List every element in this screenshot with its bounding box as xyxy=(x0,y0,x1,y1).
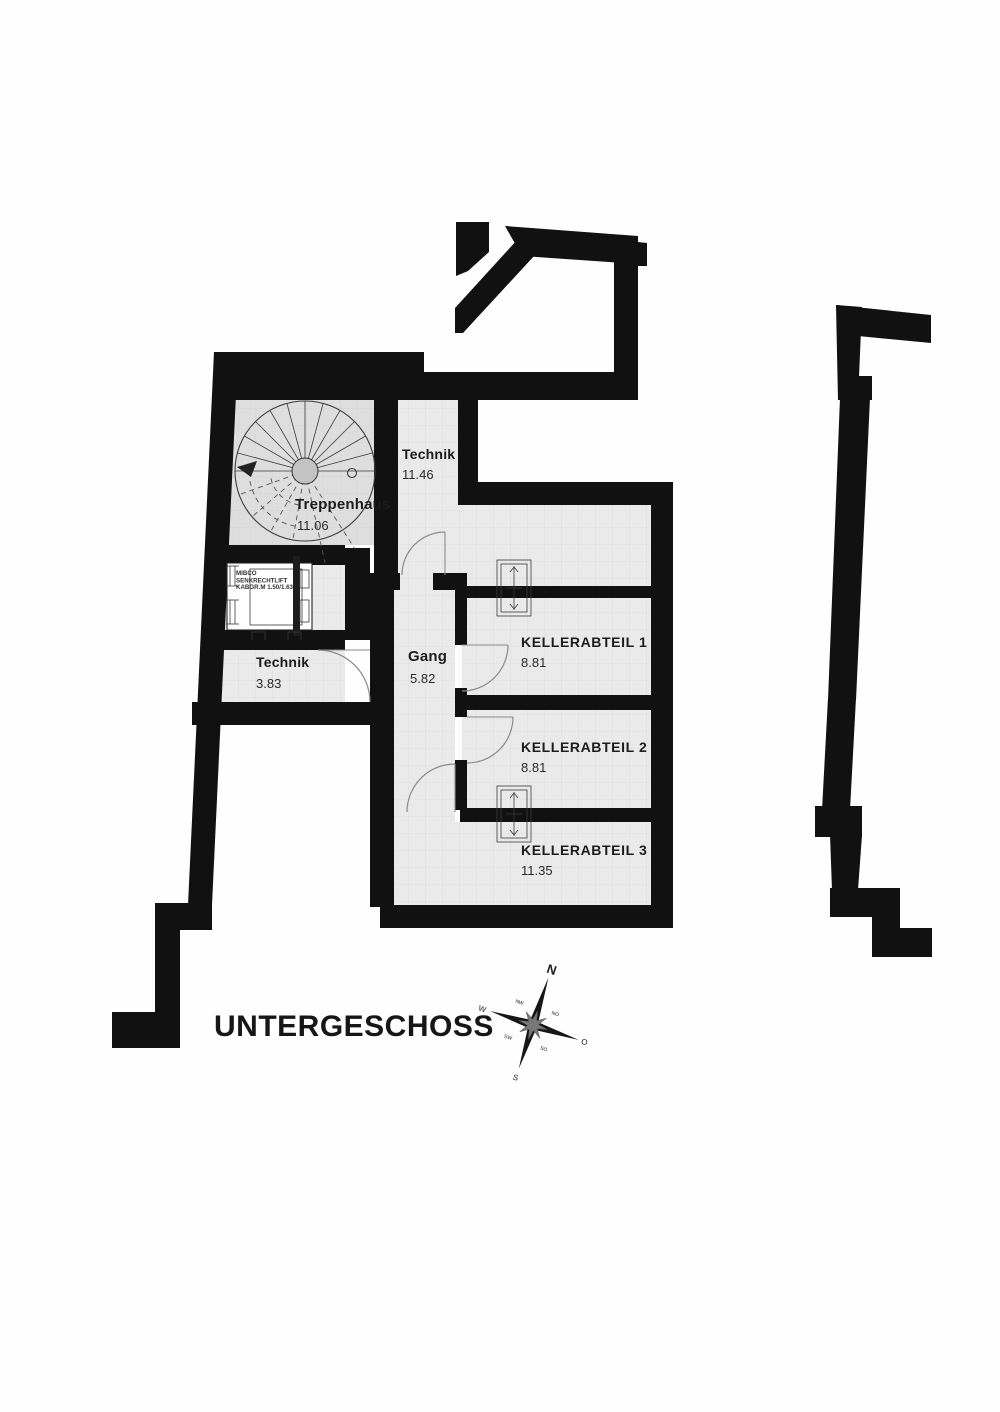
wall-step-vertical xyxy=(155,903,180,1015)
wall-keller2-keller3 xyxy=(460,808,653,822)
wall-stair-divider xyxy=(374,395,398,573)
label-gang: Gang xyxy=(408,648,447,665)
wall-step-foot xyxy=(112,1012,180,1048)
lift-note-line1: MIBCO xyxy=(236,570,293,577)
lift-symbol xyxy=(226,556,312,640)
area-technik-ug: 3.83 xyxy=(256,676,281,691)
wall-top-mid xyxy=(420,372,638,400)
wall-lift-right xyxy=(345,548,370,640)
floorplan-page: N O S W NO SO SW NW Treppenhaus 11.06 Te… xyxy=(0,0,1000,1412)
wall-gang-east-c xyxy=(455,760,467,810)
area-treppenhaus: 11.06 xyxy=(297,518,329,533)
wall-top-left xyxy=(214,352,424,400)
compass-label-sw: SW xyxy=(503,1034,513,1042)
wall-courtyard-bar xyxy=(456,222,489,276)
wall-keller1-north xyxy=(460,586,653,598)
compass-label-ne: NO xyxy=(551,1010,560,1018)
compass-star xyxy=(514,1006,552,1044)
compass-label-e: O xyxy=(580,1037,589,1047)
area-keller2: 8.81 xyxy=(521,760,546,775)
room-gang-floor xyxy=(394,586,455,830)
room-keller2-floor xyxy=(462,710,651,808)
wall-notch-south xyxy=(468,482,673,505)
area-technik-og: 11.46 xyxy=(402,467,434,482)
wall-gang-east-b xyxy=(455,688,467,717)
lift-note: MIBCO SENKRECHTLIFT KABGR.M 1.50/1.63 xyxy=(236,570,293,591)
label-keller2: KELLERABTEIL 2 xyxy=(521,739,647,755)
area-gang: 5.82 xyxy=(410,671,435,686)
wall-courtyard-right xyxy=(614,236,638,400)
wall-technik-south-a xyxy=(370,573,400,590)
lift-note-line3: KABGR.M 1.50/1.63 xyxy=(236,584,293,591)
page-title: UNTERGESCHOSS xyxy=(214,1010,494,1044)
label-technik-og: Technik xyxy=(402,446,455,462)
stair-newel xyxy=(292,458,318,484)
wall-right-boundary xyxy=(815,305,932,957)
label-technik-ug: Technik xyxy=(256,654,309,670)
lift-mast xyxy=(293,556,300,636)
wall-southwest-bottom xyxy=(192,702,394,725)
area-keller1: 8.81 xyxy=(521,655,546,670)
wall-bottom-outer xyxy=(380,905,672,928)
floorplan-drawing: N O S W NO SO SW NW xyxy=(0,0,1000,1412)
compass-label-nw: NW xyxy=(515,999,525,1007)
wall-right-outer xyxy=(651,488,673,928)
compass-label-n: N xyxy=(545,961,559,978)
wall-courtyard-notch xyxy=(638,242,647,266)
lift-note-line2: SENKRECHTLIFT xyxy=(236,577,293,584)
compass-label-se: SO xyxy=(539,1045,548,1053)
wall-gang-west xyxy=(370,573,394,907)
label-keller3: KELLERABTEIL 3 xyxy=(521,842,647,858)
wall-gang-east-a xyxy=(455,588,467,645)
label-keller1: KELLERABTEIL 1 xyxy=(521,634,647,650)
wall-keller1-keller2 xyxy=(460,695,653,710)
wall-lift-technik-divider xyxy=(205,630,345,650)
compass-label-s: S xyxy=(512,1073,520,1083)
label-treppenhaus: Treppenhaus xyxy=(295,496,391,513)
area-keller3: 11.35 xyxy=(521,863,553,878)
